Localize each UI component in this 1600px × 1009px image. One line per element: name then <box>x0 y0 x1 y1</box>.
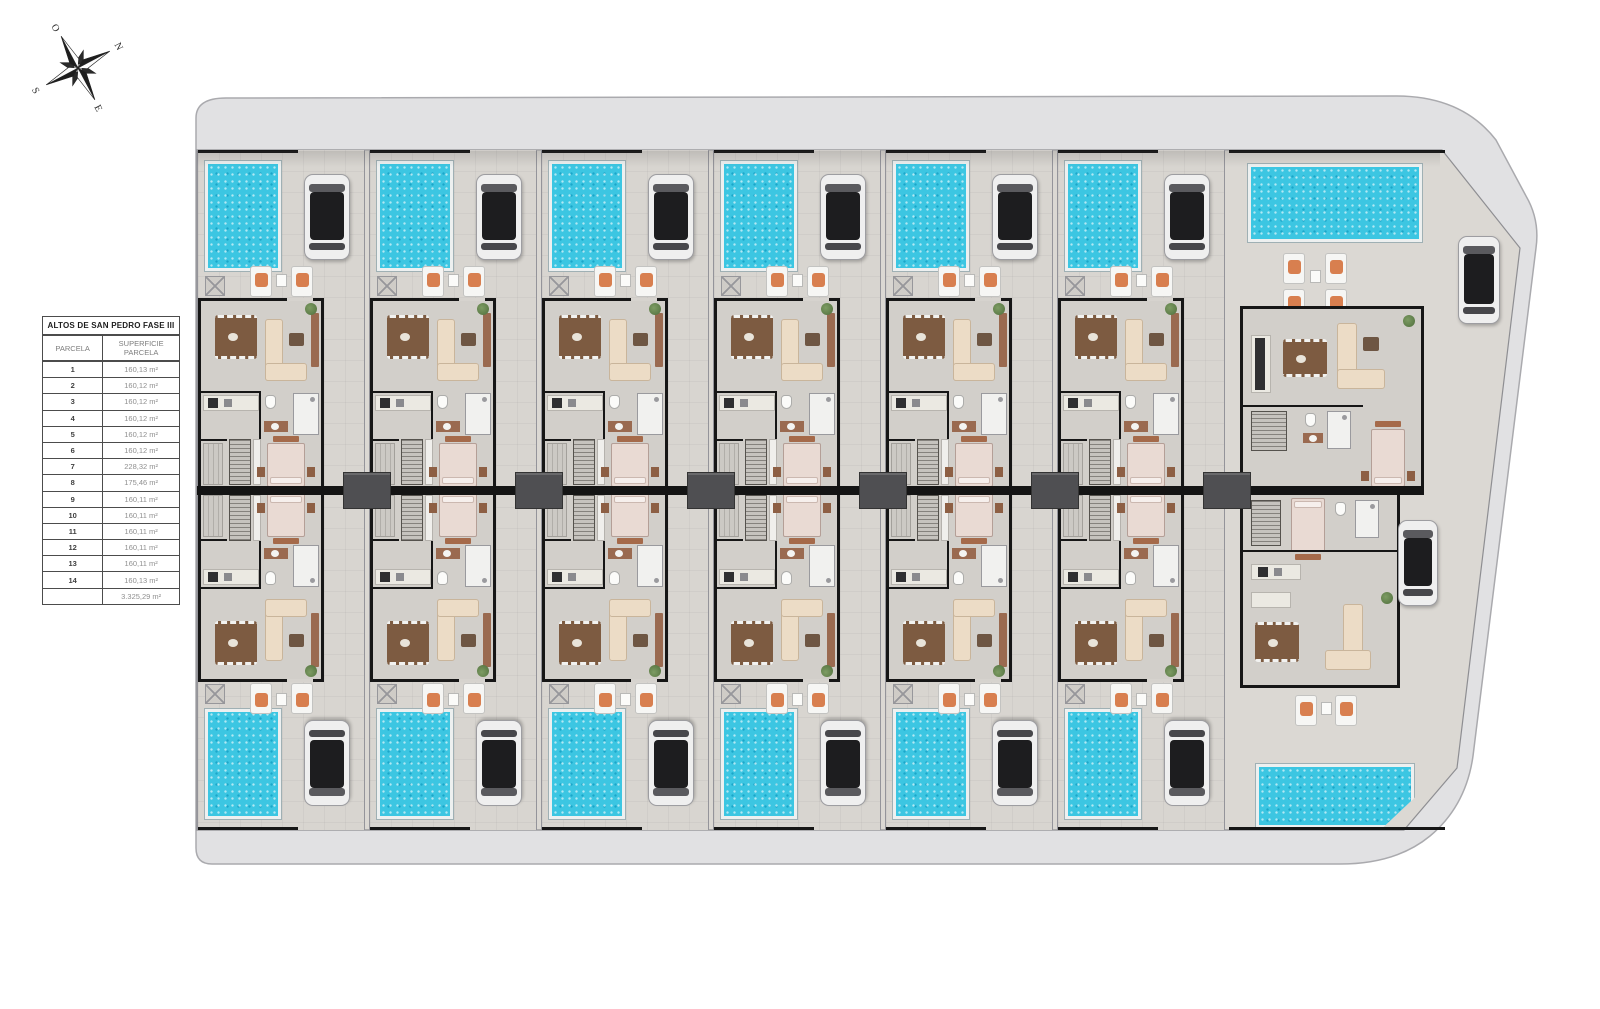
plant <box>305 303 317 315</box>
superficie-value: 175,46 m² <box>103 475 179 491</box>
entry-door <box>631 298 657 301</box>
nightstand <box>1167 503 1175 513</box>
sun-lounger <box>291 683 313 714</box>
table-row: 13160,11 m² <box>43 556 179 572</box>
entry-door <box>975 679 1001 682</box>
shower <box>465 545 491 587</box>
superficie-value: 160,13 m² <box>103 572 179 588</box>
interior-wall <box>1061 539 1087 541</box>
floor-plan <box>0 0 1600 1009</box>
interior-wall <box>889 587 947 589</box>
parked-car <box>820 174 866 260</box>
parcela-value: 4 <box>43 410 103 426</box>
bed <box>439 443 477 487</box>
parked-car <box>992 174 1038 260</box>
coffee-table <box>805 333 820 346</box>
villa-house <box>1240 492 1400 688</box>
nightstand <box>307 503 315 513</box>
villa-unit <box>370 490 536 830</box>
sun-lounger <box>1151 266 1173 297</box>
utility-block <box>1203 472 1251 509</box>
bed-bench <box>1295 554 1321 560</box>
shower <box>1153 393 1179 435</box>
parcela-value: 14 <box>43 572 103 588</box>
utility-block <box>687 472 735 509</box>
interior-wall <box>603 391 605 439</box>
sun-lounger <box>1325 253 1347 284</box>
stairs <box>573 495 595 541</box>
pool <box>892 160 970 272</box>
parcela-value: 13 <box>43 556 103 572</box>
entry-door <box>1147 679 1173 682</box>
toilet <box>1305 413 1316 427</box>
bed-bench <box>445 538 471 544</box>
parked-car <box>476 720 522 806</box>
interior-wall <box>1243 550 1397 552</box>
parked-car <box>1164 720 1210 806</box>
bed <box>267 443 305 487</box>
front-wall <box>886 827 986 830</box>
bed <box>439 493 477 537</box>
kitchen-counter <box>203 569 259 585</box>
villa-unit <box>886 150 1052 490</box>
pool <box>720 708 798 820</box>
interior-wall <box>545 439 571 441</box>
utility-box <box>377 684 397 704</box>
stairs <box>573 439 595 485</box>
sun-lounger <box>291 266 313 297</box>
table-row: 5160,12 m² <box>43 426 179 442</box>
table-row: 10160,11 m² <box>43 507 179 523</box>
interior-wall <box>373 439 399 441</box>
shower <box>1153 545 1179 587</box>
sofa <box>781 363 823 381</box>
interior-wall <box>947 391 949 439</box>
stairs <box>1251 411 1287 451</box>
coffee-table <box>977 333 992 346</box>
sofa <box>781 599 823 617</box>
bed <box>611 443 649 487</box>
plant <box>1381 592 1393 604</box>
side-table <box>1321 702 1332 715</box>
toilet <box>1125 395 1136 409</box>
stairwell <box>253 495 261 541</box>
shower <box>637 393 663 435</box>
toilet <box>609 395 620 409</box>
sofa <box>437 363 479 381</box>
bathroom-vanity <box>952 548 976 559</box>
parked-car <box>648 174 694 260</box>
table-row: 1160,13 m² <box>43 361 179 378</box>
interior-wall <box>545 587 603 589</box>
interior-wall <box>717 539 743 541</box>
bathroom-vanity <box>780 421 804 432</box>
superficie-value: 228,32 m² <box>103 459 179 475</box>
parcela-value: 8 <box>43 475 103 491</box>
shower <box>809 545 835 587</box>
interior-wall <box>373 539 399 541</box>
superficie-value: 160,11 m² <box>103 507 179 523</box>
interior-wall <box>373 587 431 589</box>
parcel-table: ALTOS DE SAN PEDRO FASE III PARCELA SUPE… <box>42 316 180 605</box>
dining-table <box>903 621 945 665</box>
sun-lounger <box>807 266 829 297</box>
nightstand <box>429 467 437 477</box>
table-row: 6160,12 m² <box>43 442 179 458</box>
sun-lounger <box>422 683 444 714</box>
interior-wall <box>201 587 259 589</box>
sun-lounger <box>979 683 1001 714</box>
front-wall <box>1058 827 1158 830</box>
toilet <box>437 571 448 585</box>
plant <box>993 303 1005 315</box>
compass-south-label: S <box>29 86 41 96</box>
interior-wall <box>1061 587 1119 589</box>
villa-unit <box>198 490 364 830</box>
entry-door <box>1147 298 1173 301</box>
side-table <box>964 693 975 706</box>
interior-wall <box>603 541 605 589</box>
utility-block <box>343 472 391 509</box>
superficie-value: 160,11 m² <box>103 491 179 507</box>
entry-door <box>287 679 313 682</box>
shower <box>1327 411 1351 449</box>
dining-table <box>559 621 601 665</box>
kitchen-counter <box>547 569 603 585</box>
villa-house <box>542 490 668 682</box>
bathroom-vanity <box>1124 548 1148 559</box>
stairwell <box>1113 439 1121 485</box>
kitchen-counter <box>891 395 947 411</box>
table-row: 14160,13 m² <box>43 572 179 588</box>
interior-wall <box>259 541 261 589</box>
bed <box>1371 429 1405 487</box>
entry-door <box>459 298 485 301</box>
kitchen-counter <box>719 395 775 411</box>
tv-sideboard <box>655 613 663 667</box>
sun-lounger <box>938 683 960 714</box>
parked-car <box>1398 520 1438 606</box>
plant <box>1165 665 1177 677</box>
stairs <box>1251 500 1281 546</box>
parcela-value: 9 <box>43 491 103 507</box>
front-wall <box>1229 827 1445 830</box>
side-table <box>448 274 459 287</box>
utility-box <box>893 276 913 296</box>
bed-bench <box>1375 421 1401 427</box>
sofa <box>953 599 995 617</box>
bed-bench <box>961 538 987 544</box>
coffee-table <box>977 634 992 647</box>
sun-lounger <box>1283 253 1305 284</box>
sun-lounger <box>1151 683 1173 714</box>
sofa <box>265 599 307 617</box>
sun-lounger <box>463 683 485 714</box>
parked-car <box>648 720 694 806</box>
parcela-header: PARCELA <box>43 336 103 361</box>
side-table <box>1136 274 1147 287</box>
bathroom-vanity <box>264 421 288 432</box>
villa-unit <box>886 490 1052 830</box>
parcela-value: 3 <box>43 394 103 410</box>
interior-wall <box>1119 541 1121 589</box>
plant <box>1165 303 1177 315</box>
villa-house <box>1240 306 1424 490</box>
pool <box>892 708 970 820</box>
side-table <box>276 274 287 287</box>
interior-wall <box>947 541 949 589</box>
dining-table <box>387 621 429 665</box>
side-table <box>1310 270 1321 283</box>
interior-wall <box>201 391 259 393</box>
sofa <box>265 363 307 381</box>
nightstand <box>1361 471 1369 481</box>
nightstand <box>651 467 659 477</box>
utility-box <box>721 684 741 704</box>
utility-block <box>1031 472 1079 509</box>
parked-car <box>992 720 1038 806</box>
tv-sideboard <box>827 313 835 367</box>
nightstand <box>429 503 437 513</box>
bed <box>955 443 993 487</box>
nightstand <box>945 503 953 513</box>
superficie-value: 160,11 m² <box>103 556 179 572</box>
sun-lounger <box>807 683 829 714</box>
tv-sideboard <box>655 313 663 367</box>
kitchen-counter <box>203 395 259 411</box>
sun-lounger <box>766 683 788 714</box>
stairwell <box>941 495 949 541</box>
dining-table <box>903 315 945 359</box>
kitchen-counter <box>1251 564 1301 580</box>
sun-lounger <box>250 683 272 714</box>
utility-box <box>549 276 569 296</box>
bathroom-vanity <box>608 421 632 432</box>
pool <box>720 160 798 272</box>
superficie-value: 160,12 m² <box>103 426 179 442</box>
shower <box>293 393 319 435</box>
interior-wall <box>889 391 947 393</box>
nightstand <box>1117 467 1125 477</box>
interior-wall <box>431 541 433 589</box>
sun-lounger <box>635 683 657 714</box>
utility-block <box>515 472 563 509</box>
sofa <box>609 363 651 381</box>
bed-bench <box>789 436 815 442</box>
villa-unit <box>1058 150 1224 490</box>
stairs <box>229 439 251 485</box>
entry-door <box>803 679 829 682</box>
interior-wall <box>717 587 775 589</box>
interior-wall <box>775 541 777 589</box>
parked-car <box>1164 174 1210 260</box>
nightstand <box>651 503 659 513</box>
pool <box>1247 163 1423 243</box>
villa-house <box>714 490 840 682</box>
plant <box>305 665 317 677</box>
plant <box>821 303 833 315</box>
sofa <box>953 363 995 381</box>
bed <box>783 493 821 537</box>
bathroom-vanity <box>1303 433 1323 443</box>
side-table <box>964 274 975 287</box>
coffee-table <box>461 333 476 346</box>
stairwell <box>769 439 777 485</box>
tv-sideboard <box>311 313 319 367</box>
shower <box>465 393 491 435</box>
superficie-value: 160,11 m² <box>103 523 179 539</box>
toilet <box>437 395 448 409</box>
bed-bench <box>789 538 815 544</box>
bed-bench <box>1133 436 1159 442</box>
toilet <box>265 571 276 585</box>
villa-unit <box>542 490 708 830</box>
nightstand <box>945 467 953 477</box>
compass-east-label: E <box>92 103 105 114</box>
toilet <box>953 571 964 585</box>
stairwell <box>597 439 605 485</box>
utility-box <box>377 276 397 296</box>
villa-house <box>370 490 496 682</box>
superficie-value: 160,11 m² <box>103 540 179 556</box>
kitchen-island <box>1251 592 1291 608</box>
villa-unit <box>714 150 880 490</box>
parcela-value: 1 <box>43 361 103 378</box>
tv-sideboard <box>311 613 319 667</box>
interior-wall <box>775 391 777 439</box>
pool <box>1064 160 1142 272</box>
bed-bench <box>445 436 471 442</box>
villa-unit <box>542 150 708 490</box>
interior-wall <box>717 391 775 393</box>
bed <box>267 493 305 537</box>
plant <box>477 665 489 677</box>
toilet <box>781 395 792 409</box>
parked-car <box>1458 236 1500 324</box>
entry-door <box>803 298 829 301</box>
kitchen-counter <box>719 569 775 585</box>
stairwell <box>425 439 433 485</box>
table-row: 8175,46 m² <box>43 475 179 491</box>
bed-bench <box>273 436 299 442</box>
tv-sideboard <box>999 613 1007 667</box>
pool <box>1255 763 1415 829</box>
kitchen-counter <box>1063 395 1119 411</box>
utility-box <box>205 276 225 296</box>
table-header-row: PARCELA SUPERFICIE PARCELA <box>43 336 179 361</box>
sun-lounger <box>250 266 272 297</box>
villa-house <box>886 490 1012 682</box>
table-row: 2160,12 m² <box>43 378 179 394</box>
coffee-table <box>1149 634 1164 647</box>
parcela-value: 6 <box>43 442 103 458</box>
sun-lounger <box>463 266 485 297</box>
plant <box>649 665 661 677</box>
bed <box>611 493 649 537</box>
stairs <box>917 439 939 485</box>
stairs <box>401 495 423 541</box>
interior-wall <box>1061 439 1087 441</box>
plant <box>1403 315 1415 327</box>
villa-unit <box>1058 490 1224 830</box>
nightstand <box>479 467 487 477</box>
bed <box>1127 443 1165 487</box>
interior-wall <box>889 539 915 541</box>
nightstand <box>773 467 781 477</box>
interior-wall <box>1119 391 1121 439</box>
parked-car <box>304 174 350 260</box>
pool <box>376 160 454 272</box>
villa-house <box>714 298 840 490</box>
coffee-table <box>461 634 476 647</box>
coffee-table <box>805 634 820 647</box>
sun-lounger <box>635 266 657 297</box>
superficie-header: SUPERFICIE PARCELA <box>103 336 179 361</box>
entry-door <box>287 298 313 301</box>
parked-car <box>820 720 866 806</box>
sun-lounger <box>422 266 444 297</box>
side-table <box>448 693 459 706</box>
parcela-value: 12 <box>43 540 103 556</box>
dining-table <box>1075 621 1117 665</box>
interior-wall <box>373 391 431 393</box>
bed <box>1127 493 1165 537</box>
superficie-value: 160,13 m² <box>103 361 179 378</box>
table-title: ALTOS DE SAN PEDRO FASE III <box>43 317 179 336</box>
coffee-table <box>1363 337 1379 351</box>
coffee-table <box>633 634 648 647</box>
superficie-value: 160,12 m² <box>103 410 179 426</box>
stairs <box>229 495 251 541</box>
side-table <box>792 274 803 287</box>
pool <box>204 160 282 272</box>
nightstand <box>601 467 609 477</box>
parcela-value: 10 <box>43 507 103 523</box>
bed-bench <box>617 436 643 442</box>
toilet <box>609 571 620 585</box>
utility-box <box>1065 276 1085 296</box>
toilet <box>265 395 276 409</box>
dining-table <box>1075 315 1117 359</box>
compass-north-label: N <box>112 41 125 53</box>
dining-table <box>215 621 257 665</box>
table-total-row: 3.325,29 m² <box>43 588 179 604</box>
interior-wall <box>545 539 571 541</box>
front-wall <box>714 827 814 830</box>
side-table <box>1136 693 1147 706</box>
table-row: 7228,32 m² <box>43 459 179 475</box>
stairwell <box>769 495 777 541</box>
kitchen-counter <box>891 569 947 585</box>
sun-lounger <box>594 266 616 297</box>
interior-wall <box>431 391 433 439</box>
parked-car <box>476 174 522 260</box>
sofa <box>1337 369 1385 389</box>
superficie-value: 160,12 m² <box>103 442 179 458</box>
stairwell <box>597 495 605 541</box>
villa-house <box>1058 490 1184 682</box>
plant <box>477 303 489 315</box>
tv-sideboard <box>483 313 491 367</box>
nightstand <box>257 467 265 477</box>
shower <box>637 545 663 587</box>
shower <box>1355 500 1379 538</box>
bed <box>1291 498 1325 552</box>
tv-sideboard <box>1171 613 1179 667</box>
kitchen-counter <box>1063 569 1119 585</box>
dining-table <box>387 315 429 359</box>
front-wall <box>542 827 642 830</box>
